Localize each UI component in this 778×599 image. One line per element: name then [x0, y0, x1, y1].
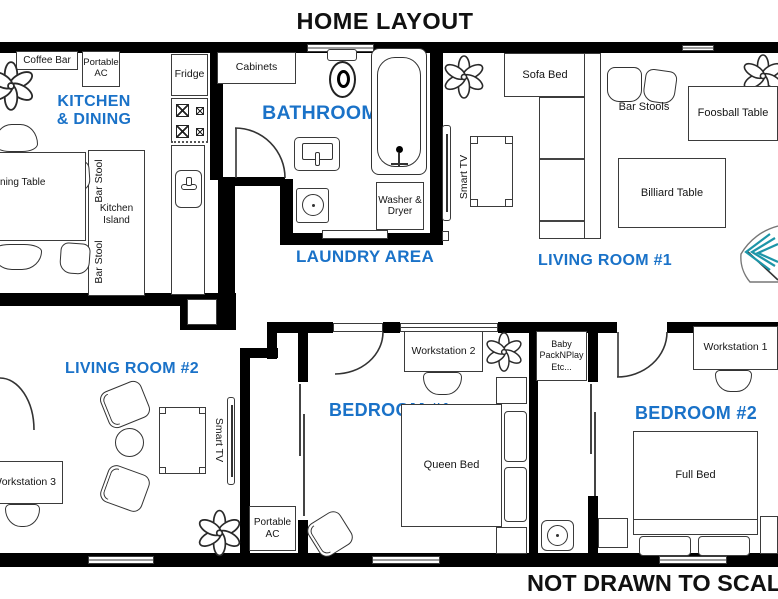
bathroom-sink-icon: [294, 137, 340, 171]
wall: [218, 186, 235, 295]
washer-dot: [312, 204, 315, 207]
closet-sliding-door: [303, 414, 305, 516]
portable-ac-kitchen: Portable AC: [82, 51, 120, 87]
pillow: [639, 536, 691, 556]
wall: [383, 322, 400, 333]
plant-icon: [196, 508, 243, 558]
bathtub-drain-icon: [396, 146, 403, 153]
footer-note: NOT DRAWN TO SCALE: [527, 569, 778, 597]
nightstand: [760, 516, 778, 554]
fan-icon: [541, 520, 574, 551]
bar-stool: [59, 242, 91, 275]
queen-bed: Queen Bed: [401, 404, 502, 527]
floor-plan: HOME LAYOUT NOT DRAWN TO SCALE: [0, 0, 778, 599]
door-arc: [335, 332, 383, 374]
lounge-chair: [98, 463, 153, 515]
room-label-living-room-1: LIVING ROOM #1: [515, 251, 695, 271]
portable-ac-label: Portable AC: [83, 58, 119, 79]
pillow: [698, 536, 750, 556]
portable-ac-label: Portable AC: [250, 517, 295, 539]
baby-packnplay: Baby PackNPlay Etc...: [536, 331, 587, 381]
kitchen-counter: [171, 145, 205, 295]
nightstand: [598, 518, 628, 548]
door-arc: [0, 378, 34, 430]
burner-icon: [176, 104, 189, 117]
room-label-kitchen-dining: KITCHEN & DINING: [52, 90, 136, 132]
lounge-chair: [97, 378, 152, 431]
queen-bed-label: Queen Bed: [424, 459, 480, 471]
plant-icon: [0, 58, 36, 114]
sink-faucet-icon: [315, 152, 320, 166]
cabinets-label: Cabinets: [236, 62, 277, 74]
full-bed: Full Bed: [633, 431, 758, 520]
bathtub-faucet-icon: [391, 163, 408, 165]
washer-dryer: Washer & Dryer: [376, 182, 424, 230]
bar-stool-label: Bar Stool: [93, 150, 105, 212]
burner-icon: [196, 128, 204, 136]
pillow: [504, 411, 527, 462]
nightstand: [496, 527, 527, 554]
smart-tv-label: Smart TV: [213, 409, 225, 471]
workstation-3-label: Workstation 3: [0, 477, 56, 489]
dining-chair: [0, 124, 38, 152]
fan-dot: [556, 534, 559, 537]
workstation-2-label: Workstation 2: [412, 346, 476, 358]
palm-leaf-icon: [738, 222, 778, 286]
table-leg: [470, 136, 478, 144]
window: [659, 556, 727, 564]
fridge-label: Fridge: [175, 69, 205, 81]
door-arc: [235, 128, 285, 178]
room-label-living-room-2: LIVING ROOM #2: [38, 359, 226, 379]
laundry-shelf: [322, 230, 388, 239]
dining-chair: [0, 244, 42, 270]
pillow: [504, 467, 527, 522]
desk-chair: [715, 370, 752, 392]
table-leg: [470, 199, 478, 207]
room-label-bedroom-2: BEDROOM #2: [616, 402, 776, 424]
smart-tv-label: Smart TV: [458, 146, 470, 208]
bathroom-cabinets: Cabinets: [217, 52, 296, 84]
billiard-table: Billiard Table: [618, 158, 726, 228]
table-leg: [199, 407, 206, 414]
bar-stool-label: Bar Stool: [93, 231, 105, 293]
smart-tv-icon: [227, 397, 235, 485]
page-title: HOME LAYOUT: [248, 5, 522, 37]
plant-icon: [442, 52, 486, 102]
wall: [298, 322, 308, 382]
desk-chair: [423, 372, 462, 395]
tv-screen: [231, 405, 233, 477]
closet-sliding-door: [299, 384, 301, 456]
table-leg: [159, 467, 166, 474]
wall: [218, 177, 285, 186]
window: [372, 556, 440, 564]
door-leaf: [333, 323, 383, 332]
sofa-bed-chaise: [539, 97, 586, 239]
entry-door: [187, 299, 217, 325]
faucet-knob-icon: [186, 177, 192, 186]
closet-sliding-door: [590, 384, 592, 454]
desk-chair: [5, 504, 40, 527]
sofa-seam: [540, 220, 585, 222]
tv-screen: [446, 134, 448, 212]
table-leg: [199, 467, 206, 474]
table-leg: [505, 136, 513, 144]
sofa-seam: [540, 158, 585, 160]
side-table: [159, 407, 206, 474]
table-leg: [505, 199, 513, 207]
toilet-icon: [327, 49, 357, 61]
sofa-bed-label: Sofa Bed: [522, 69, 567, 81]
smart-tv-icon: [442, 125, 451, 221]
door-marker: [442, 231, 449, 241]
workstation-3: Workstation 3: [0, 461, 63, 504]
round-table: [115, 428, 144, 457]
coffee-table: [470, 136, 513, 207]
wall: [588, 322, 598, 382]
dining-table-label: Dining Table: [0, 168, 48, 198]
washer-icon: [296, 188, 329, 223]
full-bed-label: Full Bed: [675, 469, 715, 481]
table-leg: [159, 407, 166, 414]
door-arc: [617, 332, 667, 377]
baby-packnplay-label: Baby PackNPlay Etc...: [537, 339, 586, 373]
washer-dryer-label: Washer & Dryer: [377, 195, 423, 217]
workstation-2: Workstation 2: [404, 331, 483, 372]
window: [682, 45, 714, 51]
window: [88, 556, 154, 564]
room-label-laundry: LAUNDRY AREA: [283, 245, 447, 269]
fridge: Fridge: [171, 54, 208, 96]
sofa-armrest: [584, 53, 601, 239]
bed-footboard: [633, 519, 758, 535]
kitchen-sink-icon: [175, 170, 202, 208]
stove-icon: [171, 98, 208, 143]
workstation-1: Workstation 1: [693, 326, 778, 370]
bar-stool: [607, 67, 642, 102]
portable-ac-bedroom-1: Portable AC: [249, 506, 296, 551]
toilet-drain-icon: [337, 70, 350, 88]
sofa-bed: Sofa Bed: [504, 53, 586, 97]
burner-icon: [196, 107, 204, 115]
foosball-table-label: Foosball Table: [698, 107, 769, 119]
nightstand: [496, 377, 527, 404]
bar-stools-label: Bar Stools: [600, 100, 688, 114]
workstation-1-label: Workstation 1: [704, 342, 768, 354]
wall: [588, 496, 598, 556]
burner-icon: [176, 125, 189, 138]
plant-icon: [484, 330, 524, 374]
billiard-table-label: Billiard Table: [641, 187, 703, 199]
foosball-table: Foosball Table: [688, 86, 778, 141]
